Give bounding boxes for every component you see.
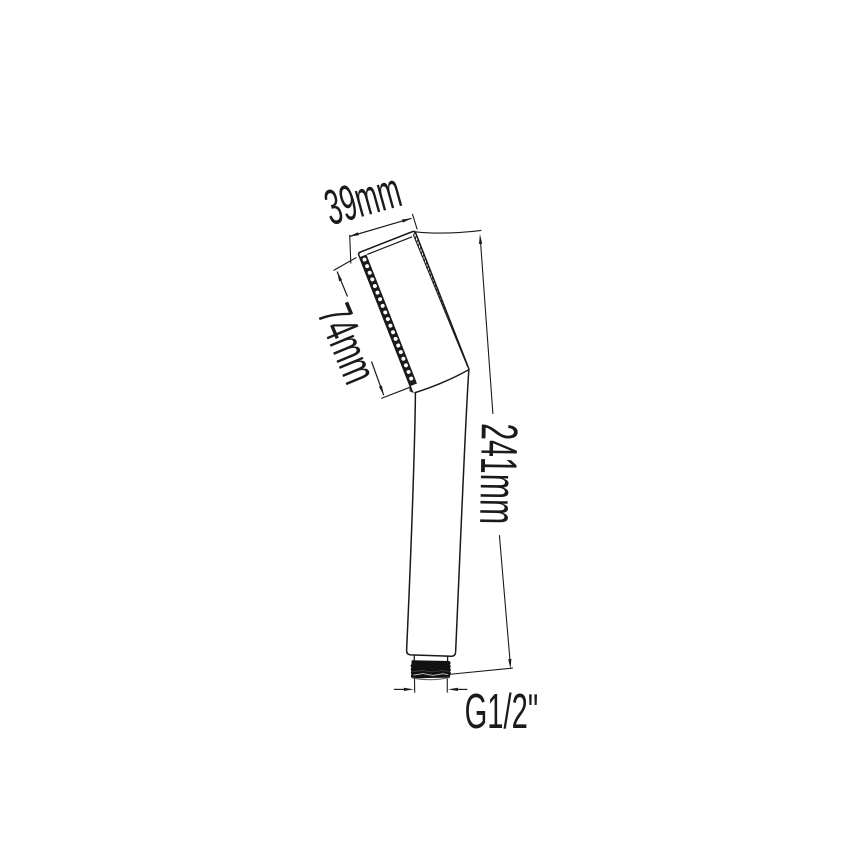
svg-text:241mm: 241mm	[469, 423, 529, 525]
svg-text:G1/2": G1/2"	[465, 684, 539, 739]
